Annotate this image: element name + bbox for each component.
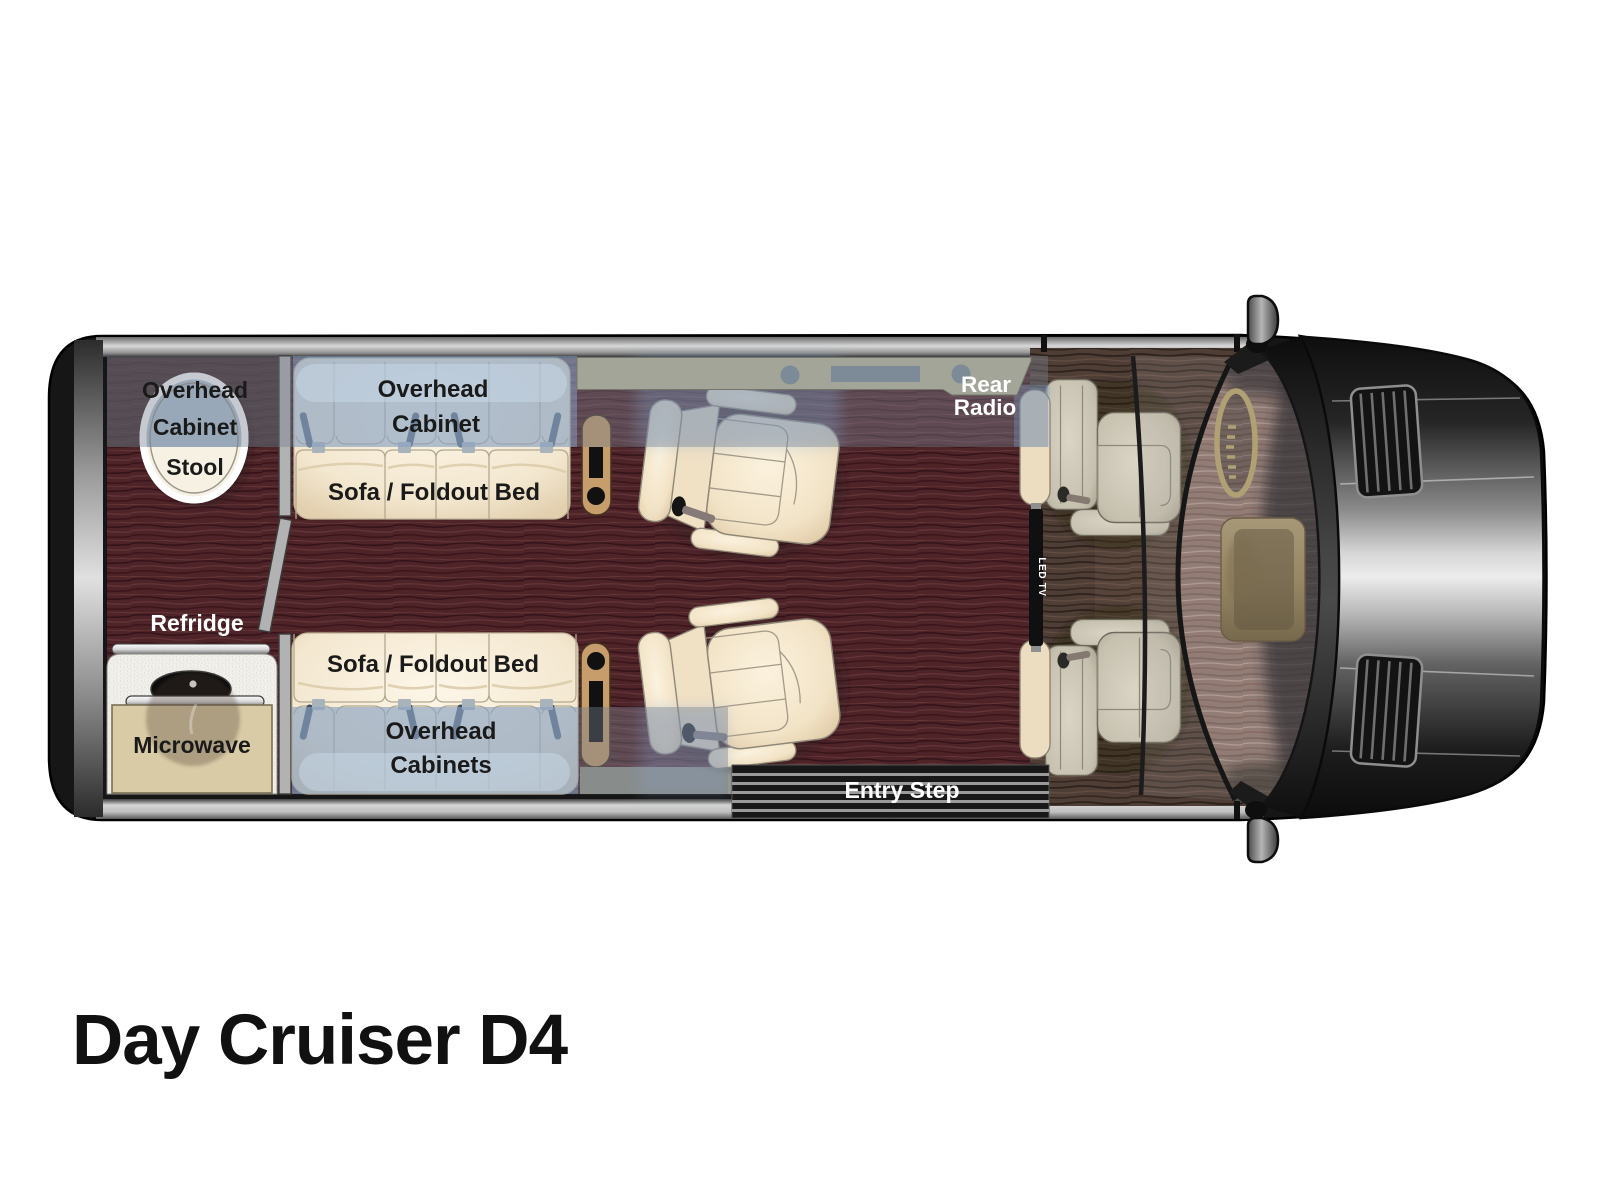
- svg-text:Cabinet: Cabinet: [153, 414, 238, 440]
- svg-text:Cabinet: Cabinet: [392, 411, 480, 438]
- svg-text:Cabinets: Cabinets: [390, 752, 491, 779]
- svg-text:Sofa / Foldout Bed: Sofa / Foldout Bed: [328, 479, 540, 506]
- svg-text:Rear: Rear: [961, 372, 1011, 397]
- svg-text:Radio: Radio: [954, 395, 1017, 420]
- svg-text:Overhead: Overhead: [378, 376, 489, 403]
- svg-text:Refridge: Refridge: [150, 610, 243, 636]
- svg-text:Day Cruiser D4: Day Cruiser D4: [72, 1001, 569, 1080]
- svg-text:Overhead: Overhead: [142, 377, 248, 403]
- svg-text:Entry Step: Entry Step: [844, 777, 959, 803]
- svg-text:Overhead: Overhead: [386, 718, 497, 745]
- svg-text:LED TV: LED TV: [1036, 557, 1047, 596]
- svg-text:Stool: Stool: [166, 454, 224, 480]
- svg-text:Sofa / Foldout Bed: Sofa / Foldout Bed: [327, 651, 539, 678]
- svg-text:Microwave: Microwave: [133, 732, 251, 758]
